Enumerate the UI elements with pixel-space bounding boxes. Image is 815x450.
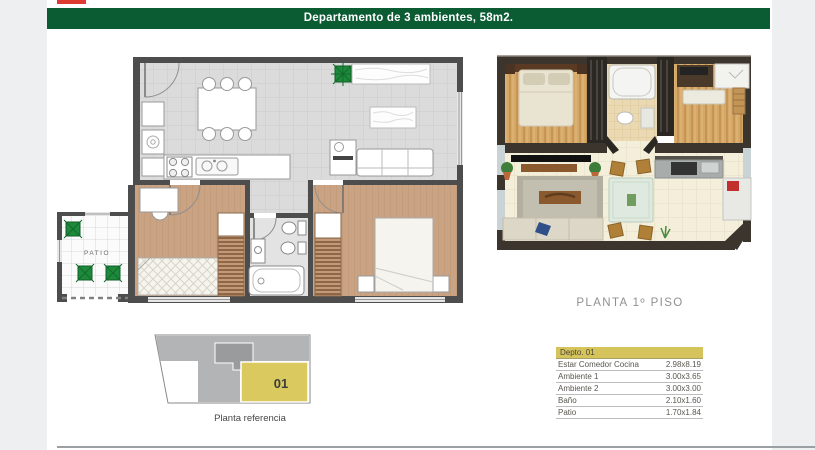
dimensions-table: Depto. 01 Estar Comedor Cocina 2.98x8.19… xyxy=(556,347,703,419)
sofa xyxy=(357,149,433,176)
brochure-page: Departamento de 3 ambientes, 58m2. xyxy=(0,0,815,450)
table-row: Estar Comedor Cocina 2.98x8.19 xyxy=(556,359,703,371)
plant-icon xyxy=(104,264,122,282)
bath-sink xyxy=(251,239,265,263)
wardrobe xyxy=(218,213,244,296)
table-row: Ambiente 1 3.00x3.65 xyxy=(556,371,703,383)
logo-mark xyxy=(57,0,86,4)
room-name: Ambiente 1 xyxy=(558,372,598,381)
3d-tv xyxy=(511,155,591,162)
table-row: Patio 1.70x1.84 xyxy=(556,407,703,419)
bedroom2 xyxy=(315,213,449,296)
3d-vanity xyxy=(641,108,654,128)
room-dims: 3.00x3.00 xyxy=(666,384,701,393)
room-dims: 1.70x1.84 xyxy=(666,408,701,417)
floorplan-3d xyxy=(487,50,767,288)
wardrobe xyxy=(315,213,341,296)
coffee-table xyxy=(370,107,416,128)
tv-cabinet xyxy=(330,140,356,175)
room-name: Estar Comedor Cocina xyxy=(558,360,639,369)
bathtub xyxy=(249,266,304,295)
room-name: Patio xyxy=(558,408,576,417)
fridge xyxy=(142,102,164,126)
3d-bathtub xyxy=(609,65,655,99)
plant-icon xyxy=(64,220,82,238)
3d-sofa xyxy=(503,218,603,240)
desk xyxy=(140,188,178,212)
reference-caption: Planta referencia xyxy=(175,413,325,424)
room-dims: 2.98x8.19 xyxy=(666,360,701,369)
floorplan-2d: PATIO xyxy=(50,48,470,306)
room-dims: 3.00x3.65 xyxy=(666,372,701,381)
kitchen-cabinet xyxy=(142,158,164,176)
table-row: Baño 2.10x1.60 xyxy=(556,395,703,407)
plant-icon xyxy=(331,62,355,86)
sideboard xyxy=(352,64,430,84)
table-row: Ambiente 2 3.00x3.00 xyxy=(556,383,703,395)
patio-label: PATIO xyxy=(84,250,110,257)
table-header: Depto. 01 xyxy=(556,347,703,359)
washer xyxy=(142,130,164,154)
bottom-divider xyxy=(57,446,815,448)
bidet xyxy=(281,242,306,254)
room-dims: 2.10x1.60 xyxy=(666,396,701,405)
room-name: Ambiente 2 xyxy=(558,384,598,393)
3d-toilet xyxy=(617,112,633,124)
plant-icon xyxy=(76,264,94,282)
kitchen-sink xyxy=(196,158,238,175)
dining-table xyxy=(198,78,256,141)
unit-01-label: 01 xyxy=(274,376,288,391)
header-bar: Departamento de 3 ambientes, 58m2. xyxy=(47,8,770,29)
3d-console xyxy=(521,164,577,172)
page-title: Departamento de 3 ambientes, 58m2. xyxy=(47,8,770,29)
room-name: Baño xyxy=(558,396,577,405)
plan3d-caption: PLANTA 1º PISO xyxy=(540,297,720,309)
